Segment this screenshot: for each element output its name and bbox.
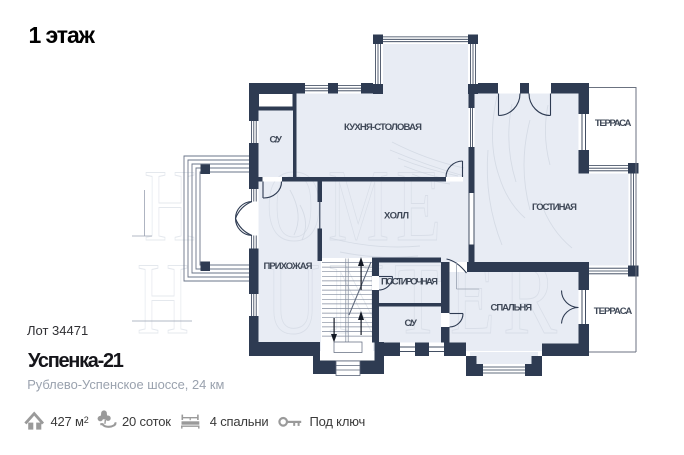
svg-text:С/У: С/У — [404, 318, 417, 329]
svg-text:R: R — [503, 242, 557, 356]
svg-text:ПРИХОЖАЯ: ПРИХОЖАЯ — [264, 261, 313, 272]
svg-text:H: H — [137, 242, 189, 356]
svg-text:С/У: С/У — [269, 135, 282, 146]
svg-text:ТЕРРАСА: ТЕРРАСА — [594, 306, 633, 317]
svg-text:СПАЛЬНЯ: СПАЛЬНЯ — [491, 303, 533, 314]
svg-text:ХОЛЛ: ХОЛЛ — [384, 211, 409, 222]
svg-text:U: U — [266, 242, 320, 356]
svg-text:ГОСТИНАЯ: ГОСТИНАЯ — [532, 202, 577, 213]
svg-text:КУХНЯ-СТОЛОВАЯ: КУХНЯ-СТОЛОВАЯ — [344, 122, 422, 133]
svg-text:ТЕРРАСА: ТЕРРАСА — [595, 118, 632, 129]
svg-text:ПОСТИРОЧНАЯ: ПОСТИРОЧНАЯ — [381, 277, 438, 288]
